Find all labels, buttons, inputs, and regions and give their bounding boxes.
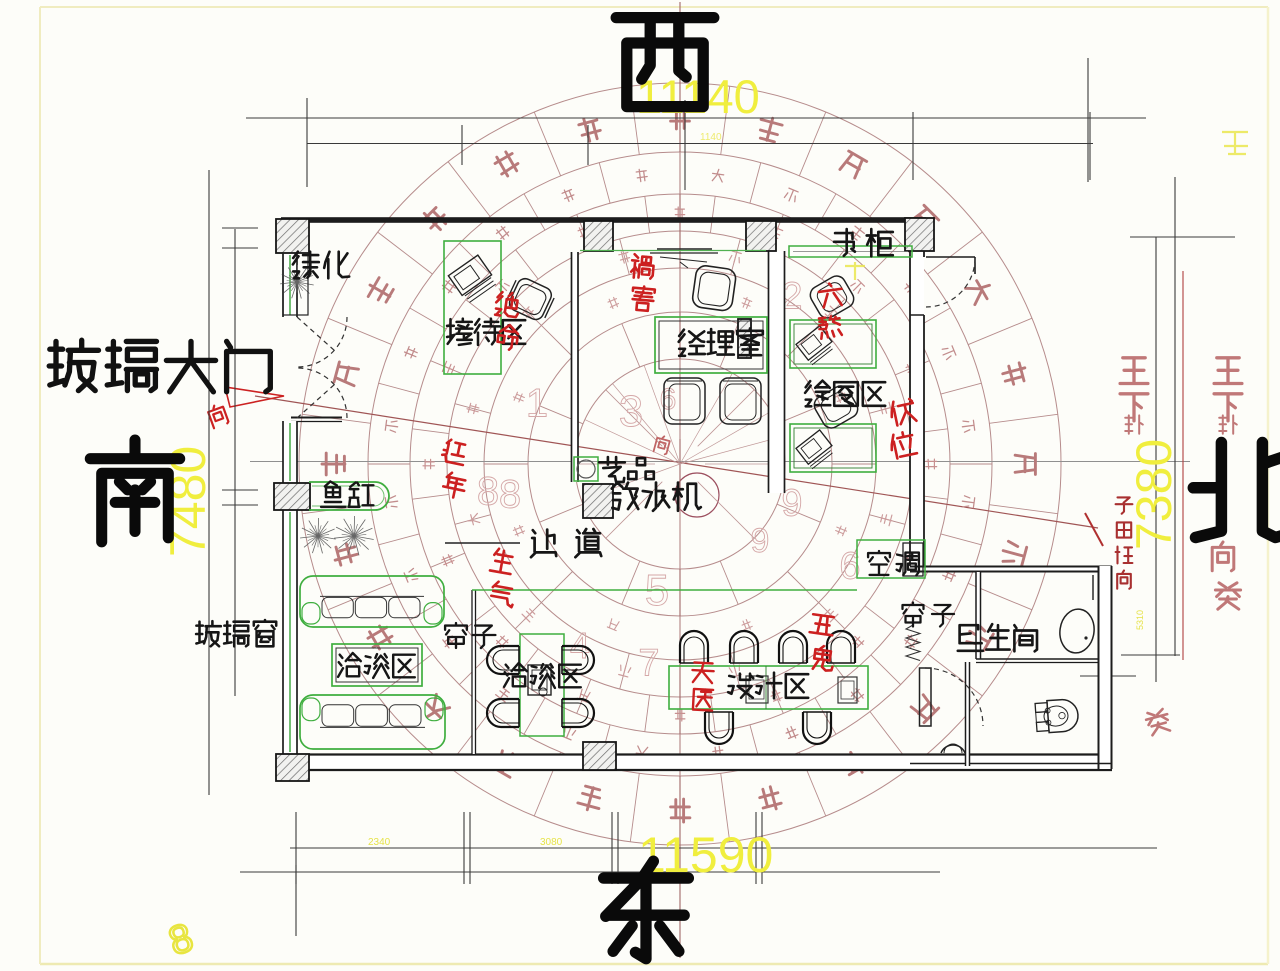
svg-text:1140: 1140 bbox=[700, 132, 722, 143]
svg-text:7: 7 bbox=[638, 643, 659, 685]
svg-text:8: 8 bbox=[477, 469, 499, 513]
svg-text:3: 3 bbox=[619, 387, 643, 436]
svg-text:7380: 7380 bbox=[1126, 439, 1182, 550]
svg-text:5310: 5310 bbox=[1135, 610, 1145, 630]
svg-text:9: 9 bbox=[751, 522, 770, 560]
svg-text:3080: 3080 bbox=[540, 837, 563, 848]
svg-text:8: 8 bbox=[499, 472, 521, 516]
svg-text:6: 6 bbox=[660, 383, 677, 416]
svg-text:2340: 2340 bbox=[368, 837, 391, 848]
svg-text:1: 1 bbox=[526, 381, 548, 425]
